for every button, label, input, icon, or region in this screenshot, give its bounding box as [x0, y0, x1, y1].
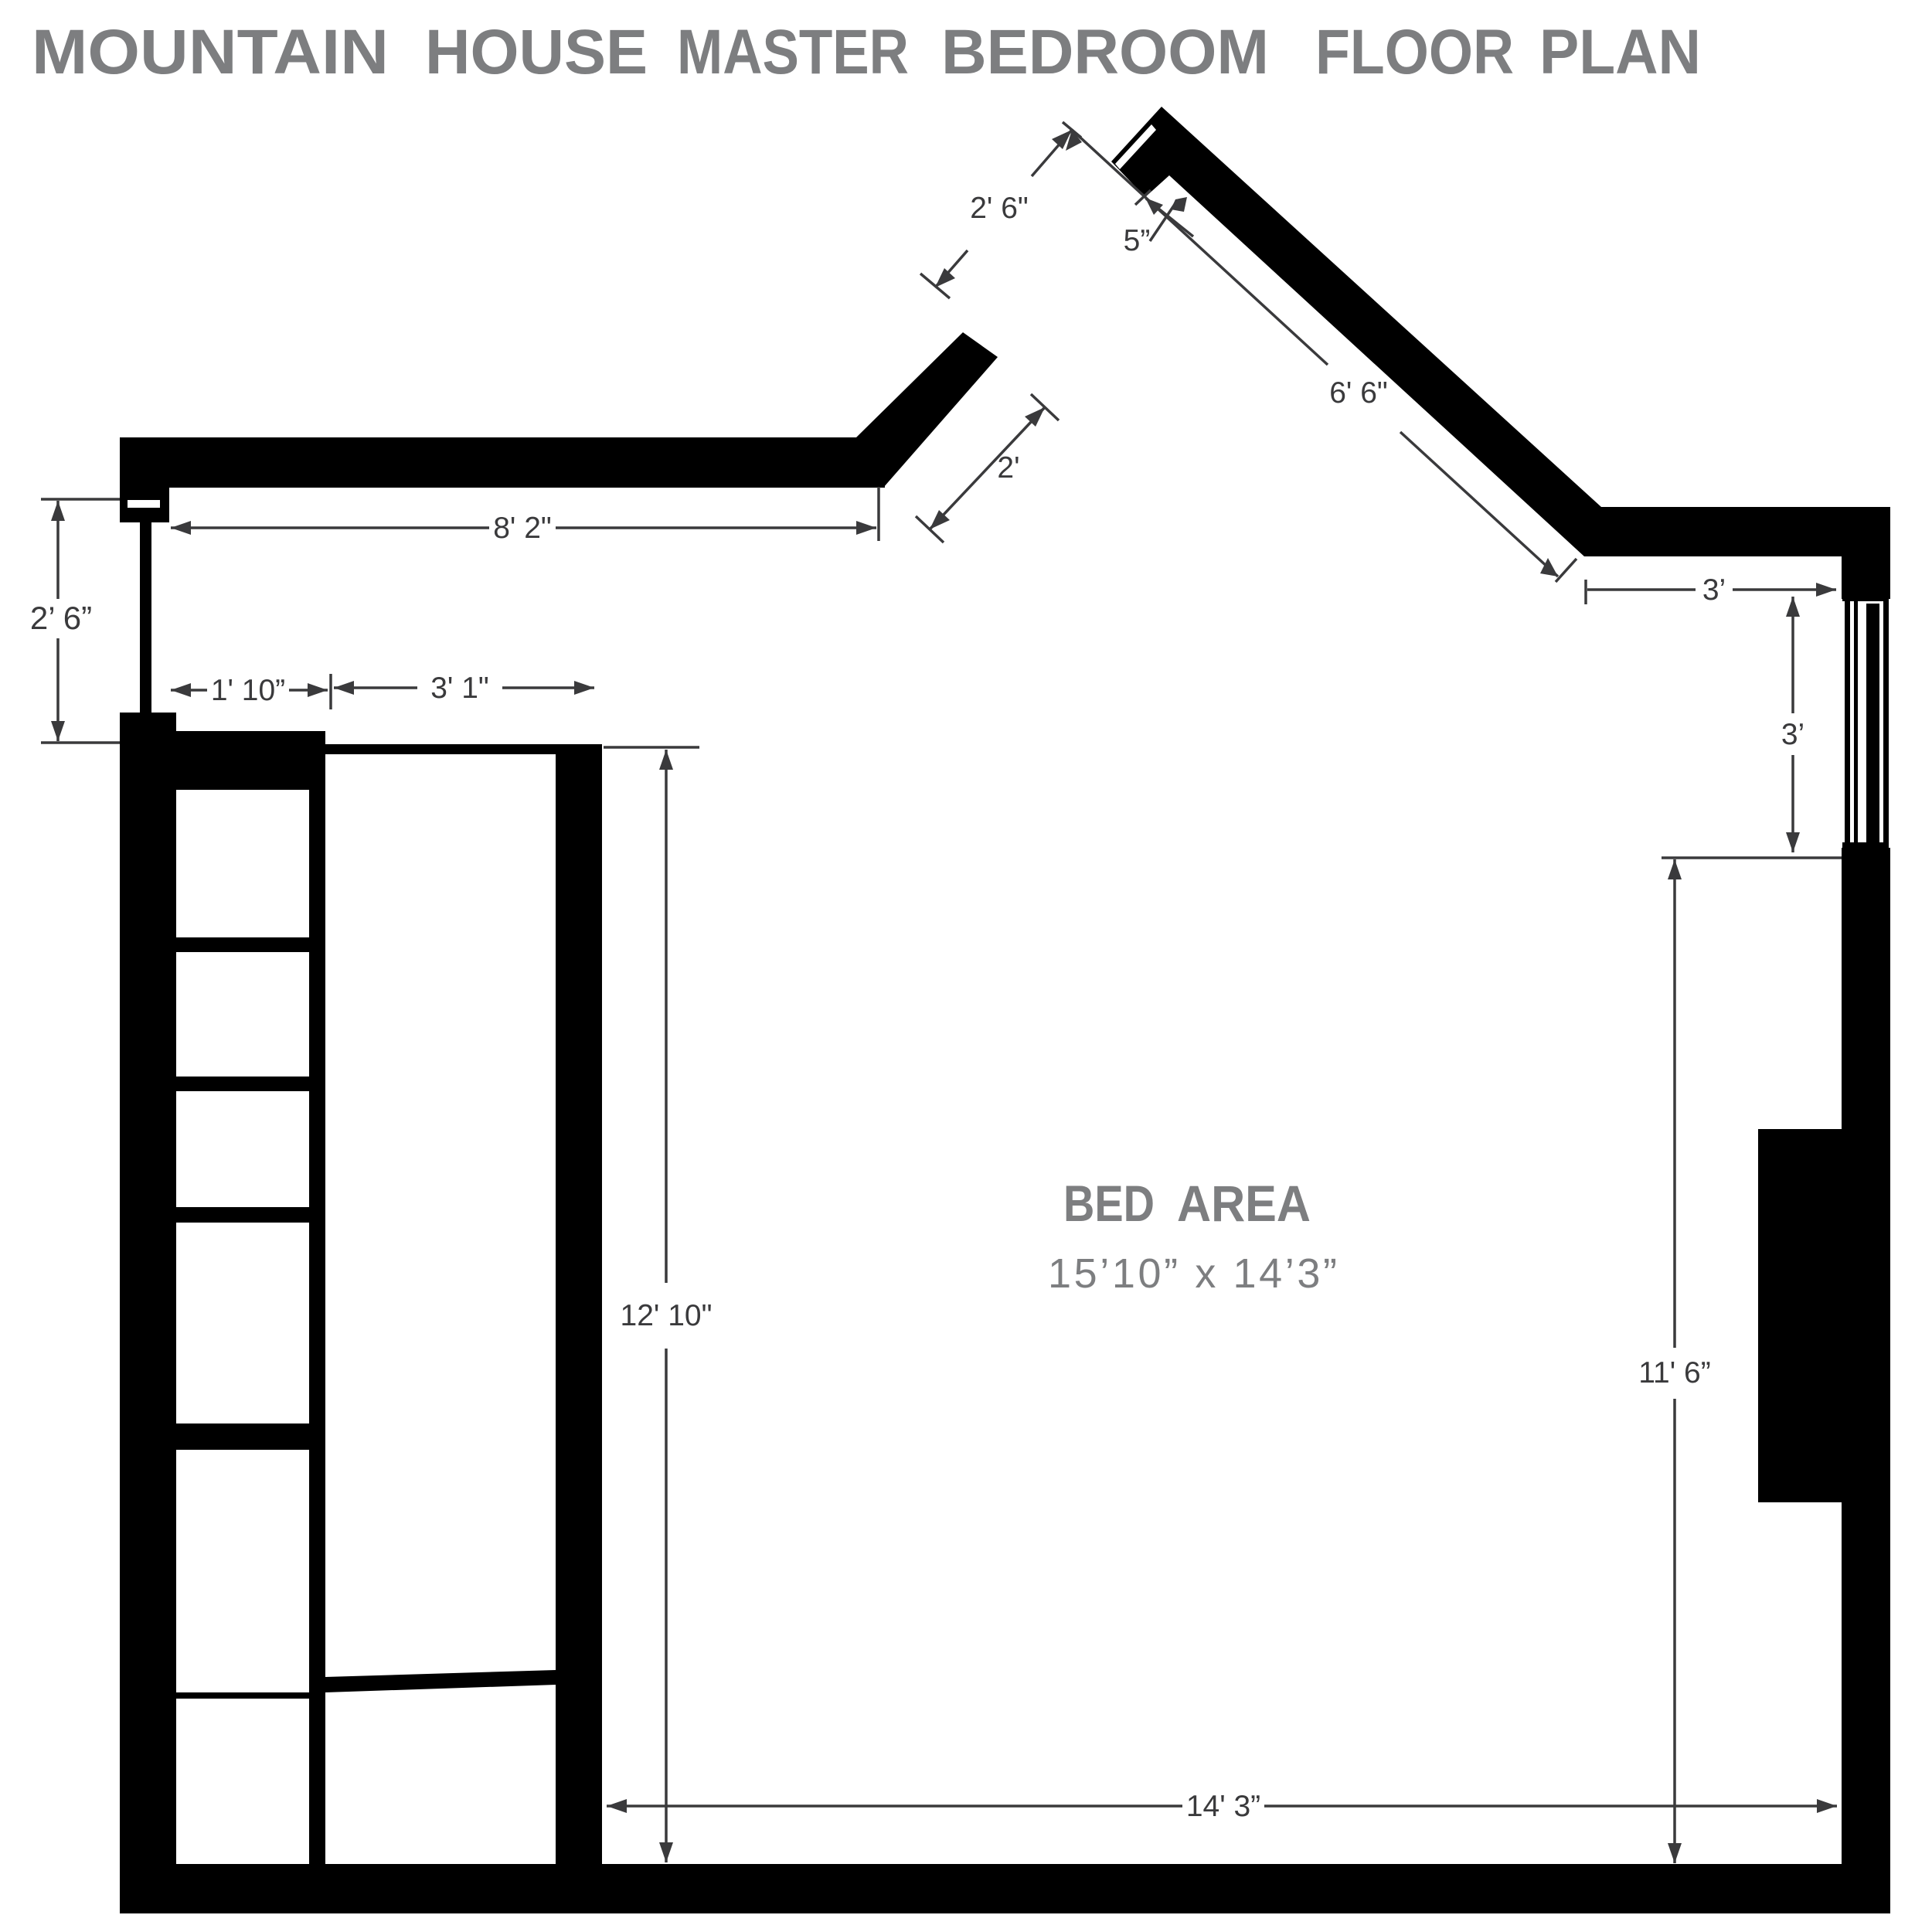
svg-text:11' 6”: 11' 6” — [1638, 1356, 1710, 1389]
svg-text:8' 2": 8' 2" — [493, 512, 552, 545]
svg-text:2' 6": 2' 6" — [970, 192, 1029, 225]
svg-text:3’: 3’ — [1702, 573, 1726, 607]
svg-text:PLAN: PLAN — [1539, 17, 1701, 87]
svg-text:12' 10": 12' 10" — [621, 1299, 713, 1332]
svg-text:3' 1": 3' 1" — [430, 672, 489, 705]
svg-text:5”: 5” — [1124, 224, 1151, 257]
svg-text:BED: BED — [1063, 1175, 1155, 1232]
svg-text:1' 10”: 1' 10” — [211, 674, 285, 707]
svg-text:14' 3”: 14' 3” — [1186, 1790, 1260, 1823]
svg-text:BEDROOM: BEDROOM — [941, 17, 1269, 87]
svg-text:MASTER: MASTER — [677, 17, 909, 87]
svg-text:MOUNTAIN: MOUNTAIN — [32, 17, 389, 87]
svg-text:2': 2' — [997, 451, 1019, 485]
svg-text:6' 6": 6' 6" — [1329, 376, 1388, 410]
svg-text:AREA: AREA — [1177, 1175, 1311, 1232]
svg-text:HOUSE: HOUSE — [425, 17, 648, 87]
svg-text:2’ 6”: 2’ 6” — [30, 600, 92, 636]
svg-text:3’: 3’ — [1781, 718, 1804, 751]
svg-text:FLOOR: FLOOR — [1315, 17, 1514, 87]
